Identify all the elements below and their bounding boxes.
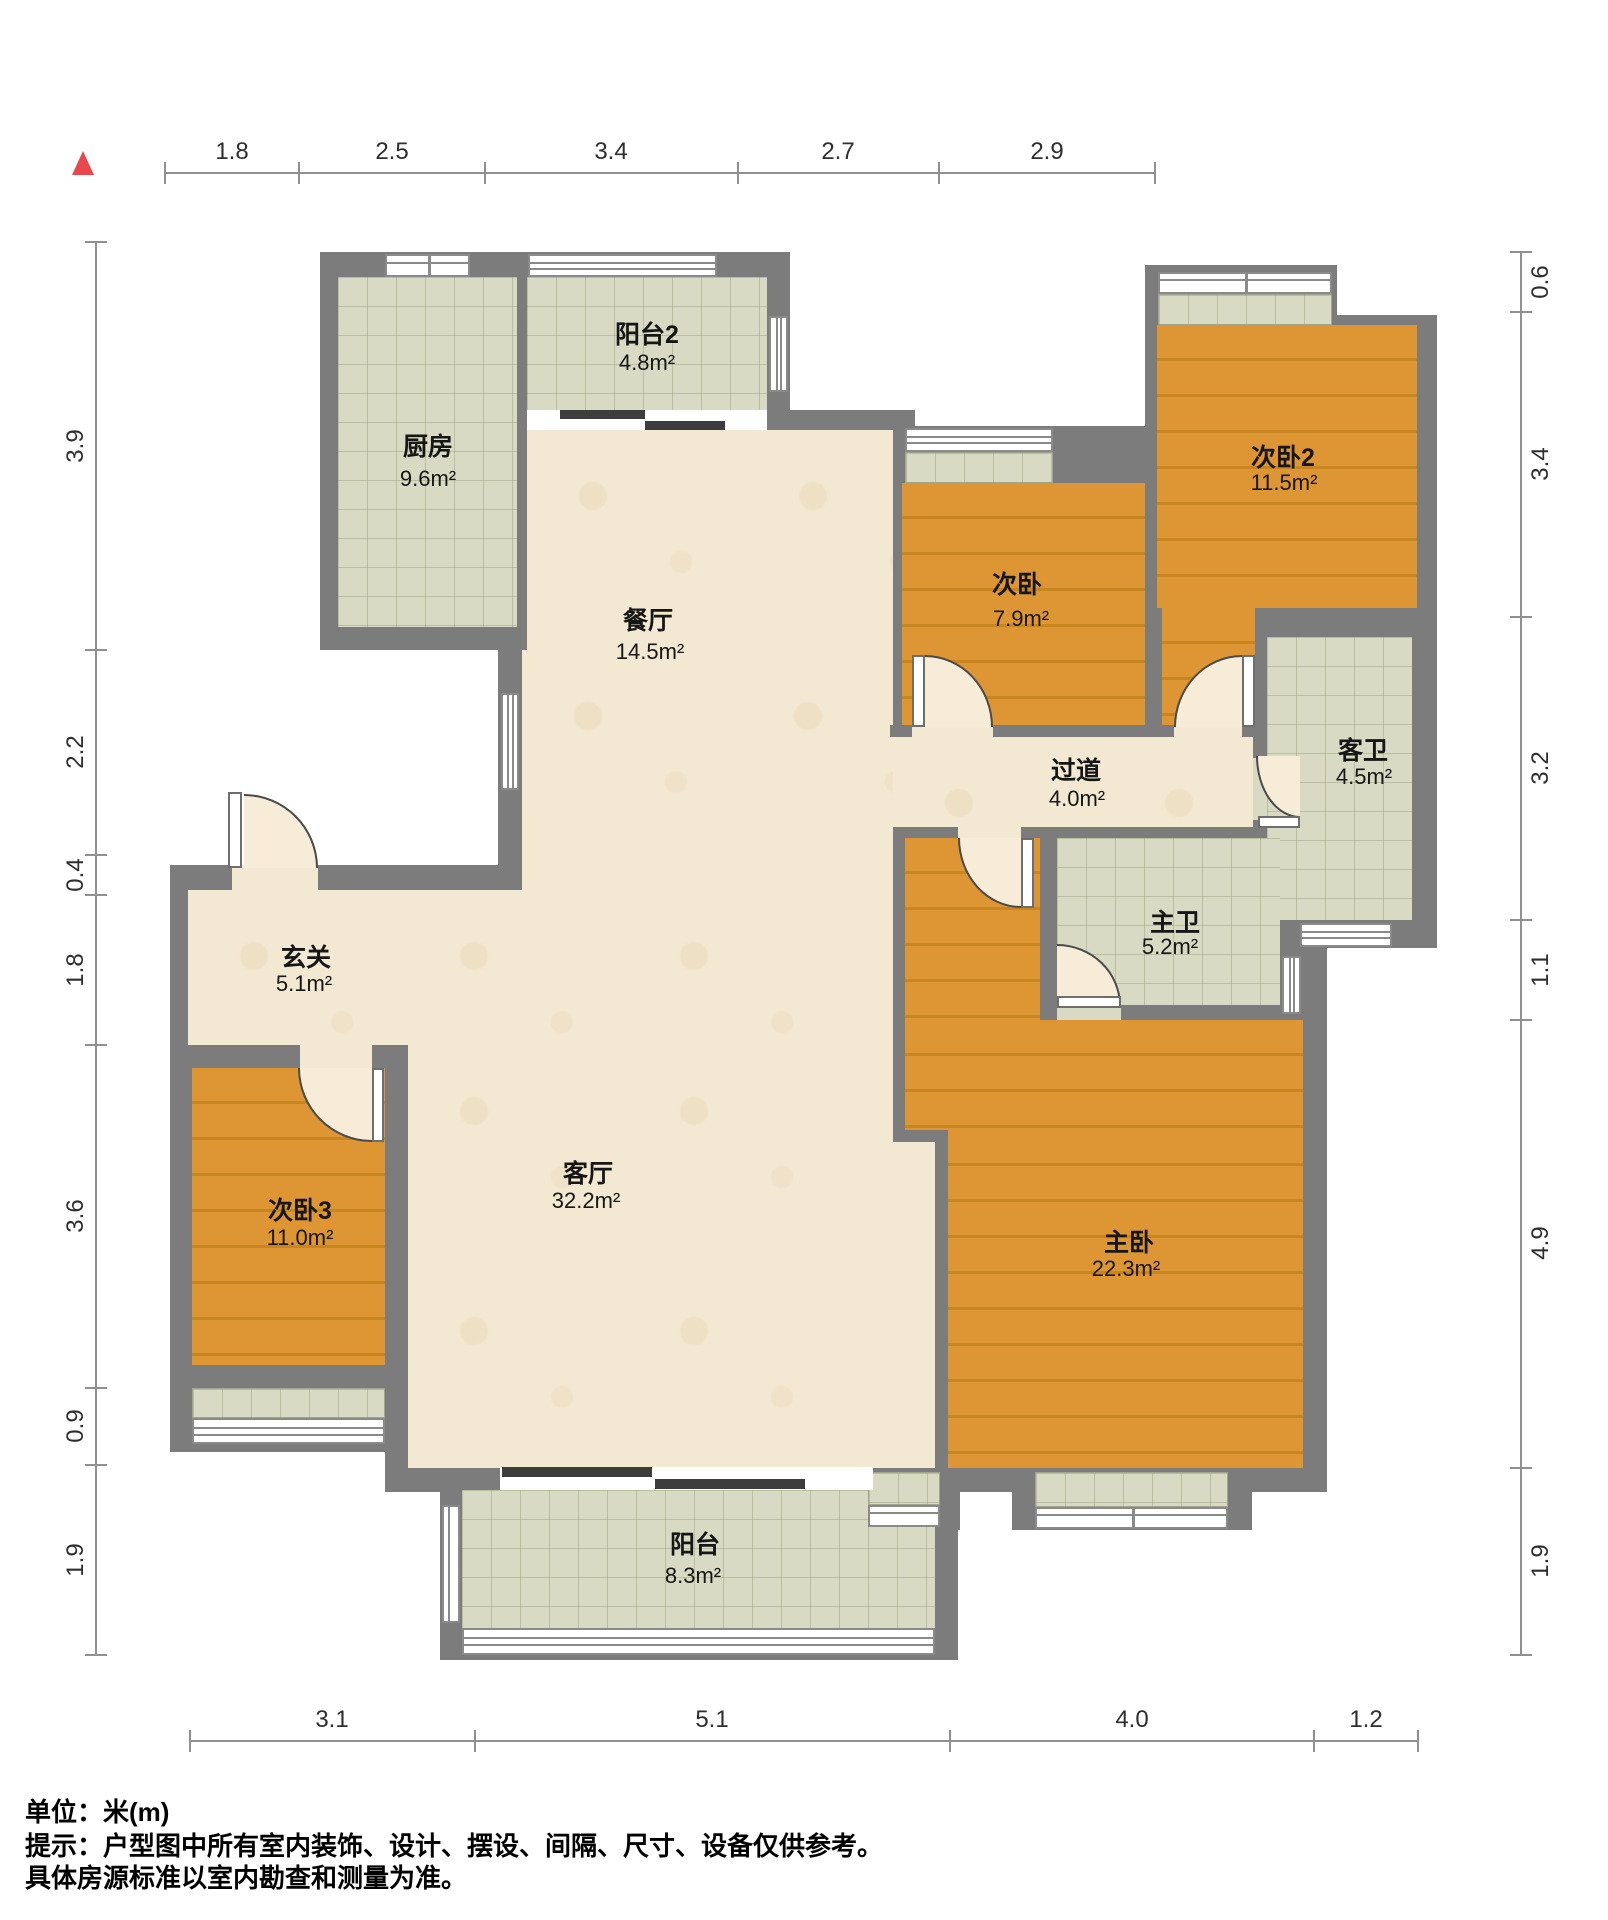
wall — [517, 252, 527, 650]
tick — [298, 162, 300, 184]
window — [1158, 272, 1332, 294]
tick — [1154, 162, 1156, 184]
dim-top-5: 2.9 — [1030, 138, 1063, 166]
room-area-master-bath: 5.2m² — [1142, 934, 1198, 960]
floor-living — [893, 1142, 935, 1468]
window — [442, 1505, 460, 1623]
dim-bottom-3: 4.0 — [1115, 1706, 1148, 1734]
tick — [1510, 311, 1532, 313]
door-opening — [300, 1045, 372, 1068]
room-label-bedroom2: 次卧2 — [1251, 438, 1315, 474]
tick — [1510, 616, 1532, 618]
tick — [1510, 251, 1532, 253]
bay-window-sill — [192, 1388, 385, 1418]
tick — [85, 1654, 107, 1656]
sliding-door — [502, 1467, 652, 1477]
window-sill — [1158, 294, 1332, 325]
dim-top-2: 2.5 — [375, 138, 408, 166]
dimension-line-bottom — [190, 1740, 1418, 1742]
bay-window — [1035, 1507, 1228, 1529]
wall — [188, 865, 232, 890]
tick — [949, 1730, 951, 1752]
floor-living — [408, 1045, 893, 1468]
room-area-kitchen: 9.6m² — [400, 466, 456, 492]
dim-bottom-2: 5.1 — [695, 1706, 728, 1734]
wall — [170, 1365, 408, 1388]
wall — [1157, 725, 1174, 737]
floor-dining — [527, 430, 893, 650]
room-area-hallway: 4.0m² — [1049, 786, 1105, 812]
sliding-door — [655, 1479, 805, 1489]
floor-master — [905, 1020, 1303, 1130]
wall — [320, 627, 527, 650]
tick — [85, 1464, 107, 1466]
tick — [1313, 1730, 1315, 1752]
room-label-master: 主卧 — [1104, 1223, 1154, 1259]
tick — [164, 162, 166, 184]
floor-dining — [522, 650, 893, 890]
floorplan-canvas: 阳台2 4.8m² 厨房 9.6m² 餐厅 14.5m² 次卧 7.9m² 次卧… — [0, 0, 1608, 1920]
dim-bottom-4: 1.2 — [1349, 1706, 1382, 1734]
room-label-guest-bath: 客卫 — [1338, 731, 1388, 767]
entry-door-arc — [244, 794, 318, 868]
room-area-bedroom3: 11.0m² — [267, 1225, 334, 1251]
room-area-dining: 14.5m² — [616, 639, 684, 665]
room-label-entry: 玄关 — [281, 938, 331, 974]
tick — [85, 854, 107, 856]
tick — [85, 894, 107, 896]
wall — [993, 725, 1145, 737]
room-label-bedroom2nd: 次卧 — [992, 565, 1042, 601]
dim-right-6: 1.9 — [1527, 1544, 1555, 1577]
dim-left-3: 0.4 — [62, 858, 90, 891]
room-area-bedroom2: 11.5m² — [1251, 470, 1318, 496]
window — [1282, 956, 1301, 1014]
bay-window — [868, 1505, 940, 1527]
tick — [85, 241, 107, 243]
dimension-line-left — [95, 242, 97, 1655]
room-label-hallway: 过道 — [1051, 751, 1101, 787]
room-label-kitchen: 厨房 — [403, 427, 453, 463]
dim-left-5: 3.6 — [62, 1199, 90, 1232]
room-label-balcony2: 阳台2 — [615, 315, 679, 351]
tick — [474, 1730, 476, 1752]
dim-top-3: 3.4 — [594, 138, 627, 166]
tick — [1510, 1654, 1532, 1656]
dim-left-2: 2.2 — [62, 735, 90, 768]
bay-window — [192, 1418, 385, 1444]
dim-right-2: 3.4 — [1527, 447, 1555, 480]
room-area-living: 32.2m² — [552, 1188, 620, 1214]
north-compass-icon — [72, 151, 94, 175]
tick — [1510, 1019, 1532, 1021]
window — [905, 428, 1053, 452]
window — [501, 693, 519, 790]
window — [528, 254, 717, 277]
room-area-entry: 5.1m² — [276, 971, 332, 997]
bay-window-sill — [1035, 1472, 1228, 1507]
wall — [170, 1045, 300, 1068]
door-opening — [232, 865, 318, 890]
dim-top-1: 1.8 — [215, 138, 248, 166]
dim-left-7: 1.9 — [62, 1543, 90, 1576]
dimension-line-top — [165, 172, 1155, 174]
dim-left-6: 0.9 — [62, 1409, 90, 1442]
door-leaf — [1057, 996, 1121, 1008]
dim-right-3: 3.2 — [1527, 751, 1555, 784]
wall — [385, 1045, 408, 1490]
door-opening — [958, 827, 1021, 838]
dim-left-1: 3.9 — [62, 429, 90, 462]
room-label-living: 客厅 — [563, 1154, 613, 1190]
dim-top-4: 2.7 — [821, 138, 854, 166]
tick — [85, 1044, 107, 1046]
door-leaf — [1258, 816, 1300, 828]
tick — [189, 1730, 191, 1752]
tick — [85, 1387, 107, 1389]
room-area-master: 22.3m² — [1092, 1256, 1160, 1282]
door-leaf — [912, 655, 925, 727]
window — [1300, 923, 1392, 947]
disclaimer-line2: 具体房源标准以室内勘查和测量为准。 — [25, 1858, 467, 1895]
tick — [1510, 919, 1532, 921]
floor-master — [948, 1130, 1303, 1468]
tick — [1510, 1467, 1532, 1469]
wall — [318, 865, 522, 890]
door-leaf — [372, 1068, 384, 1142]
bay-window-sill — [868, 1472, 940, 1505]
room-label-balcony: 阳台 — [670, 1525, 720, 1561]
dim-left-4: 1.8 — [62, 953, 90, 986]
entry-door-leaf — [228, 792, 242, 868]
tick — [737, 162, 739, 184]
room-label-dining: 餐厅 — [623, 601, 673, 637]
tick — [85, 649, 107, 651]
door-leaf — [1021, 838, 1034, 908]
door-leaf — [1242, 655, 1255, 727]
dim-bottom-1: 3.1 — [315, 1706, 348, 1734]
window-sill — [905, 452, 1053, 483]
room-area-balcony: 8.3m² — [665, 1563, 721, 1589]
room-area-guest-bath: 4.5m² — [1336, 764, 1392, 790]
dimension-line-right — [1520, 252, 1522, 1655]
unit-note: 单位：米(m) — [25, 1792, 169, 1829]
dim-right-1: 0.6 — [1527, 265, 1555, 298]
sliding-door — [645, 421, 725, 430]
wall — [890, 725, 912, 737]
dim-right-5: 4.9 — [1527, 1226, 1555, 1259]
room-area-bedroom2nd: 7.9m² — [993, 606, 1049, 632]
room-area-balcony2: 4.8m² — [619, 350, 675, 376]
tick — [484, 162, 486, 184]
tick — [938, 162, 940, 184]
dim-right-4: 1.1 — [1527, 953, 1555, 986]
room-label-bedroom3: 次卧3 — [268, 1191, 332, 1227]
tick — [1417, 1730, 1419, 1752]
window — [385, 254, 470, 277]
sliding-door — [560, 410, 645, 419]
window — [769, 316, 788, 392]
window — [462, 1628, 935, 1655]
